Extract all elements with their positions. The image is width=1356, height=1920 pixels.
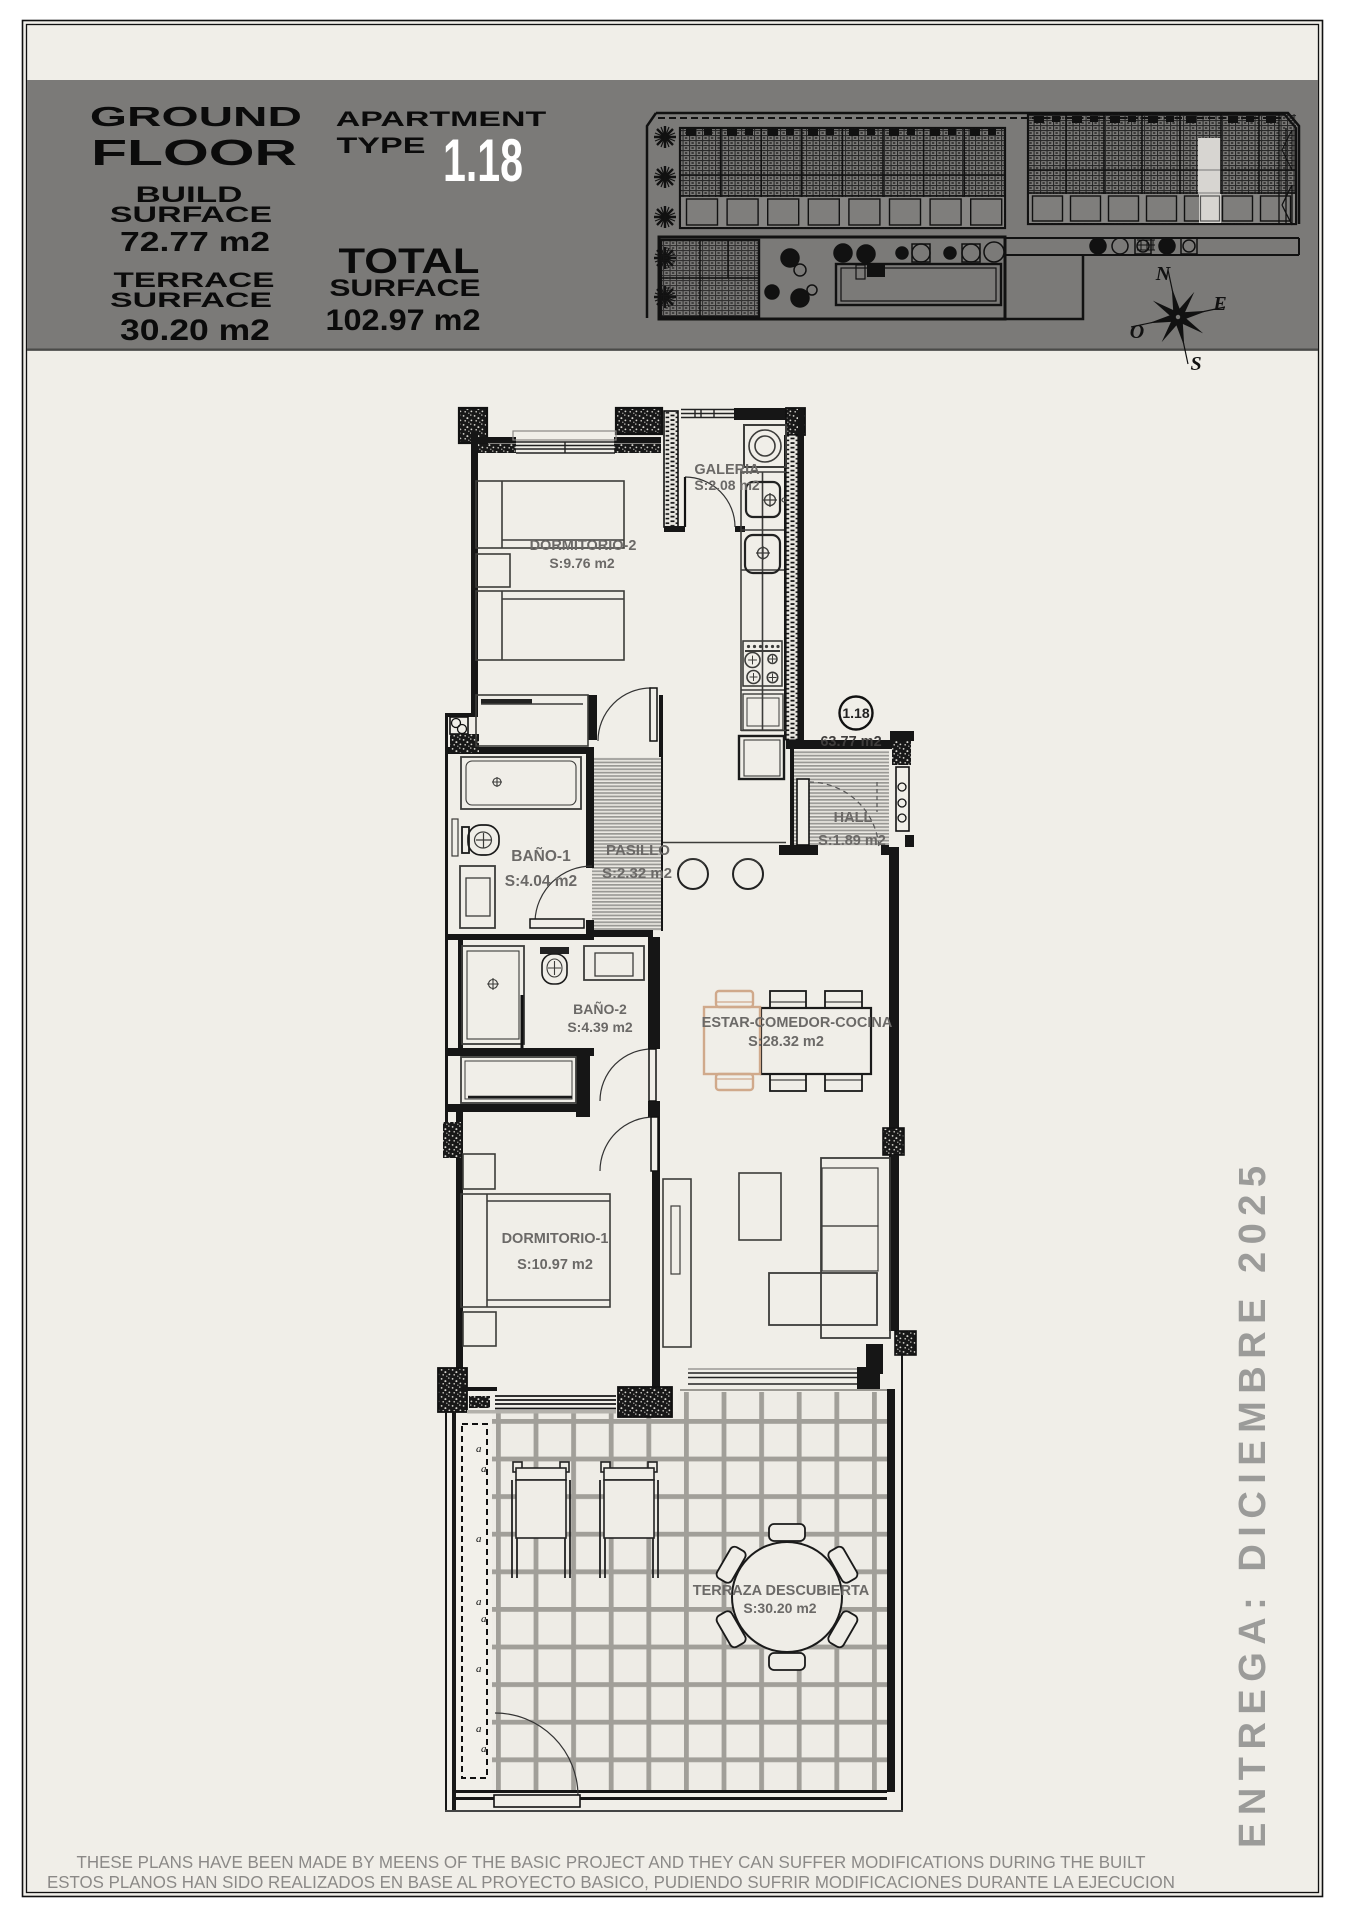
svg-text:S:30.20 m2: S:30.20 m2: [743, 1600, 816, 1616]
svg-text:GALERIA: GALERIA: [694, 462, 760, 478]
svg-text:BAÑO-1: BAÑO-1: [511, 847, 571, 865]
svg-text:1.18: 1.18: [842, 705, 869, 721]
svg-text:ESTAR-COMEDOR-COCINA: ESTAR-COMEDOR-COCINA: [702, 1015, 893, 1031]
svg-text:SURFACE: SURFACE: [110, 203, 272, 228]
svg-text:S:10.97 m2: S:10.97 m2: [517, 1257, 593, 1273]
svg-text:a: a: [476, 1533, 482, 1545]
svg-text:E: E: [1212, 293, 1226, 315]
svg-text:72.77 m2: 72.77 m2: [120, 226, 270, 258]
svg-text:a: a: [476, 1596, 482, 1608]
svg-text:a: a: [476, 1443, 482, 1455]
svg-text:BAÑO-2: BAÑO-2: [573, 1000, 627, 1017]
svg-text:S:1.89 m2: S:1.89 m2: [818, 833, 886, 849]
svg-text:GROUND: GROUND: [90, 102, 302, 133]
svg-text:a: a: [476, 1723, 482, 1735]
svg-text:S:4.04 m2: S:4.04 m2: [505, 873, 577, 890]
svg-text:THESE PLANS HAVE BEEN MADE BY: THESE PLANS HAVE BEEN MADE BY MEENS OF T…: [77, 1852, 1146, 1872]
svg-text:102.97 m2: 102.97 m2: [326, 303, 481, 337]
svg-text:HALL: HALL: [834, 810, 873, 826]
svg-text:DORMITORIO-1: DORMITORIO-1: [502, 1231, 609, 1247]
svg-text:S:4.39 m2: S:4.39 m2: [567, 1019, 633, 1035]
svg-text:TERRAZA DESCUBIERTA: TERRAZA DESCUBIERTA: [693, 1583, 870, 1599]
svg-text:SURFACE: SURFACE: [110, 288, 272, 312]
svg-text:PASILLO: PASILLO: [606, 842, 670, 859]
svg-text:30.20 m2: 30.20 m2: [120, 313, 270, 347]
svg-text:TYPE: TYPE: [336, 134, 425, 159]
svg-text:S:2.08 m2: S:2.08 m2: [694, 477, 760, 493]
svg-text:ENTREGA: DICIEMBRE 2025: ENTREGA: DICIEMBRE 2025: [1232, 1160, 1274, 1848]
svg-text:63.77 m2: 63.77 m2: [820, 734, 881, 750]
svg-text:N: N: [1155, 263, 1172, 285]
svg-text:a: a: [481, 1743, 487, 1755]
svg-text:a: a: [481, 1463, 487, 1475]
svg-text:a: a: [476, 1663, 482, 1675]
svg-text:S: S: [1190, 353, 1201, 375]
svg-text:FLOOR: FLOOR: [91, 133, 297, 173]
svg-text:S:9.76 m2: S:9.76 m2: [549, 555, 615, 571]
svg-text:1.18: 1.18: [443, 127, 523, 194]
svg-text:ESTOS PLANOS HAN SIDO REALIZAD: ESTOS PLANOS HAN SIDO REALIZADOS EN BASE…: [47, 1872, 1175, 1892]
svg-text:DORMITORIO-2: DORMITORIO-2: [530, 538, 637, 554]
svg-text:S:28.32 m2: S:28.32 m2: [748, 1034, 824, 1050]
svg-text:S:2.32 m2: S:2.32 m2: [602, 865, 672, 882]
svg-text:O: O: [1130, 321, 1144, 343]
svg-text:SURFACE: SURFACE: [329, 275, 480, 301]
svg-text:a: a: [481, 1613, 487, 1625]
